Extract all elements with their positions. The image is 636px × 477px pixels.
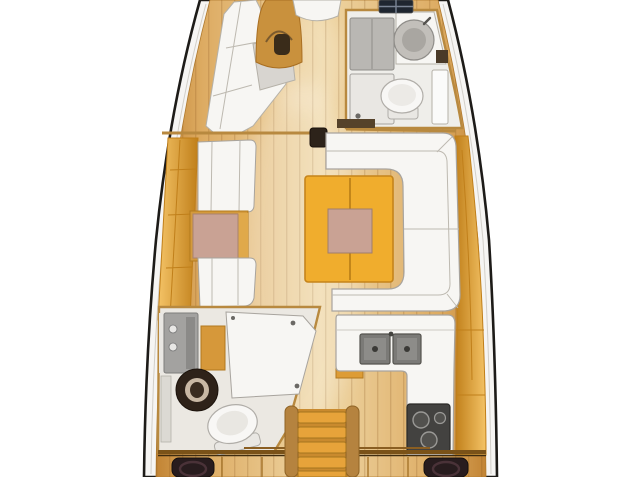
fwd-bulkhead-stbd bbox=[346, 129, 456, 131]
companionway-steps bbox=[285, 406, 359, 477]
galley-sink-left-drain bbox=[372, 346, 378, 352]
aft-head-locker bbox=[201, 326, 225, 370]
step-tread-4 bbox=[298, 457, 346, 468]
shower-hinge-1 bbox=[291, 321, 296, 326]
shower-hinge-2 bbox=[295, 384, 300, 389]
step-tread-2 bbox=[298, 427, 346, 438]
galley-sink-right-drain bbox=[404, 346, 410, 352]
port-settee-area bbox=[158, 138, 256, 320]
shower-column bbox=[186, 317, 195, 369]
doorway-shadow bbox=[337, 119, 375, 128]
shower-hose-strip bbox=[161, 376, 171, 442]
port-table-top bbox=[193, 214, 238, 258]
shower-knob-2 bbox=[169, 343, 177, 351]
step-tread-5 bbox=[298, 471, 346, 477]
stove-burner-2 bbox=[435, 413, 446, 424]
shower-hinge-3 bbox=[231, 316, 235, 320]
galley-faucet bbox=[389, 332, 394, 337]
steps-rail-right bbox=[346, 406, 359, 477]
aft-sink-basin bbox=[190, 382, 204, 398]
salon-table-center bbox=[328, 209, 372, 253]
arch-doorway-opening bbox=[274, 34, 290, 55]
fwd-head-door bbox=[432, 70, 448, 124]
step-tread-3 bbox=[298, 442, 346, 453]
bow-seat bbox=[293, 0, 341, 21]
fwd-sink-basin bbox=[402, 28, 426, 52]
mast-post bbox=[310, 128, 327, 147]
port-bench-aft bbox=[198, 258, 256, 307]
step-tread-1 bbox=[298, 412, 346, 423]
yacht-floor-plan bbox=[0, 0, 636, 477]
fwd-shower-drain bbox=[355, 113, 360, 118]
stove-burner-1 bbox=[413, 412, 429, 428]
port-bench-fwd bbox=[198, 140, 256, 214]
fwd-head-locker bbox=[436, 50, 448, 63]
floor-plan-svg bbox=[0, 0, 636, 477]
steps-rail-left bbox=[285, 406, 298, 477]
port-table-leaf bbox=[238, 213, 248, 259]
aft-head-wall-strip bbox=[159, 313, 164, 373]
fwd-toilet-seat bbox=[388, 84, 416, 106]
shower-knob-1 bbox=[169, 325, 177, 333]
stove-burner-3 bbox=[421, 432, 437, 448]
